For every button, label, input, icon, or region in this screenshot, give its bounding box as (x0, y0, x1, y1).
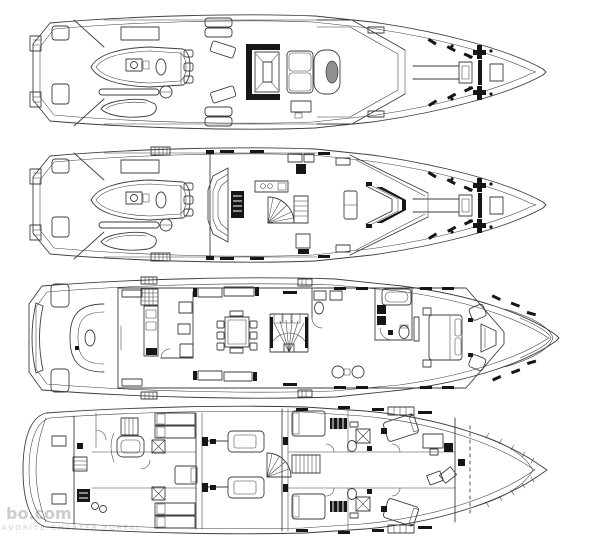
hall-chairs (332, 366, 364, 378)
salon-sofas (193, 287, 297, 386)
master-bed (414, 308, 462, 367)
main-deck-plan (29, 277, 559, 399)
crew-mess (111, 433, 144, 462)
wheelhouse (336, 155, 428, 255)
guest-bathrooms (348, 409, 373, 531)
grand-staircase (270, 314, 308, 352)
vip-cabins (381, 407, 465, 533)
master-bathroom (375, 288, 412, 340)
aft-settee (70, 290, 142, 386)
bow-lounge (468, 294, 553, 381)
deck-plans-drawing: bo.com AVORITE CHARTER PORTAL (0, 0, 600, 540)
galley (141, 289, 193, 358)
deck-plans-figure: bo.com AVORITE CHARTER PORTAL (0, 0, 600, 540)
starboard-engine (202, 431, 264, 452)
crew-quarters (73, 413, 197, 528)
dining-area (217, 311, 257, 353)
lower-deck-plan (23, 406, 547, 534)
bay-sofa (208, 168, 228, 242)
laundry (77, 489, 107, 513)
sun-deck-plan (30, 15, 546, 129)
wardrobe (330, 418, 347, 512)
central-staircase (267, 453, 320, 477)
radar-mast (317, 20, 405, 124)
sun-pads (205, 18, 236, 126)
engine-room (202, 431, 288, 498)
helm-bench (287, 50, 340, 118)
chain-locker (470, 426, 534, 514)
tv-cabinet (231, 191, 244, 218)
guest-cabins-aft (288, 411, 455, 519)
crew-shower (152, 440, 165, 500)
day-head (312, 288, 364, 378)
bridge-deck-plan (30, 147, 546, 262)
watermark: bo.com AVORITE CHARTER PORTAL (2, 504, 142, 532)
port-engine (202, 477, 264, 498)
bar (255, 154, 314, 254)
helm-console (366, 182, 406, 228)
crew-bunks (155, 413, 197, 528)
transom-settee (32, 284, 69, 392)
spiral-staircase (268, 196, 308, 223)
skylounge (151, 147, 330, 261)
bar-counter (246, 44, 280, 100)
